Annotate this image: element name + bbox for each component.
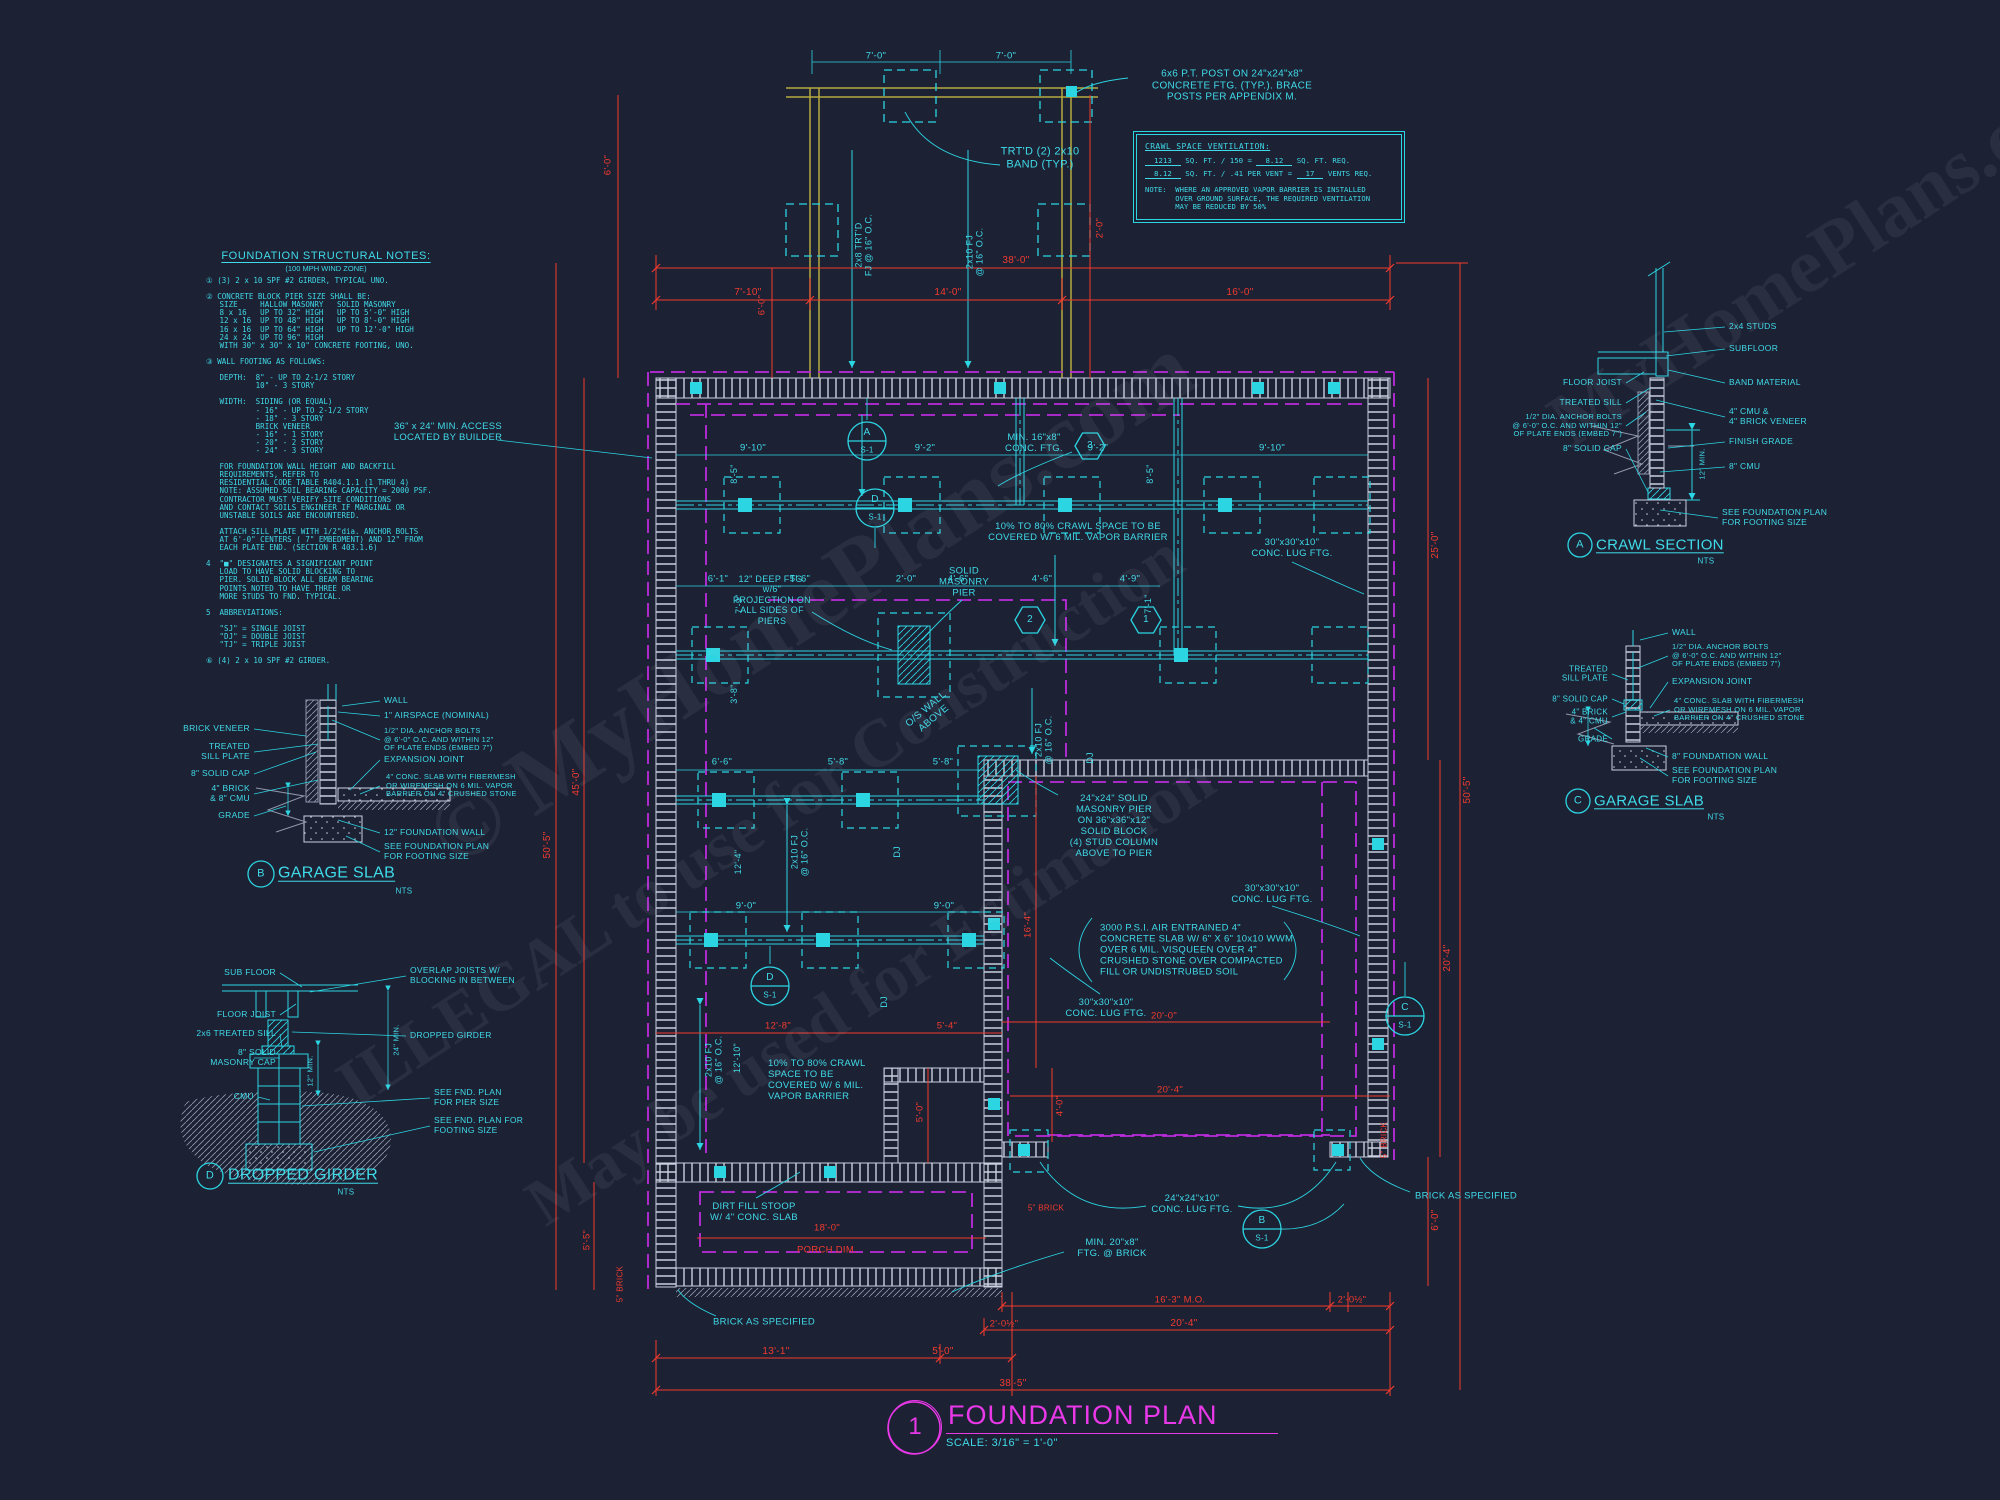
callout-d2-letter: D [766, 972, 774, 984]
a-2x4-studs: 2x4 STUDS [1729, 322, 1777, 332]
a-solid-cap: 8" SOLID CAP [1563, 444, 1622, 454]
a-8-cmu: 8" CMU [1729, 462, 1760, 472]
c-solid-cap: 8" SOLID CAP [1552, 694, 1608, 703]
min-20x8-note: MIN. 20"x8" FTG. @ BRICK [1077, 1237, 1146, 1259]
dim-5-8-a: 5'-8" [828, 756, 848, 767]
dim-38-0: 38'-0" [1002, 255, 1029, 267]
dim-20-4-bottom: 20'-4" [1170, 1318, 1197, 1330]
dim-4-0-v: 4'-0" [1054, 1096, 1065, 1116]
foundation-walls [656, 378, 1390, 1297]
dim-5-0-b: 5'-0" [932, 1346, 953, 1358]
c-nts: NTS [1708, 812, 1725, 821]
callout-d2-sub: S-1 [763, 990, 776, 999]
sheet-number-circle: 1 [888, 1400, 942, 1454]
post-note: 6x6 P.T. POST ON 24"x24"x8" CONCRETE FTG… [1152, 69, 1312, 104]
d-pier-size: SEE FND. PLAN FOR PIER SIZE [434, 1088, 502, 1108]
dj-label-3: DJ [1085, 752, 1095, 764]
vent-calc-line-1: 1213 SQ. FT. / 150 = 8.12 SQ. FT. REQ. [1145, 156, 1393, 166]
a-letter: A [1576, 539, 1584, 552]
porch-dim-label: PORCH DIM. [797, 1244, 857, 1255]
a-finish-grade: FINISH GRADE [1729, 437, 1793, 447]
b-letter: B [257, 868, 265, 881]
vent-line2-mid: SQ. FT. / .41 PER VENT = [1185, 169, 1292, 178]
lug-24-note: 24"x24"x10" CONC. LUG FTG. [1151, 1193, 1232, 1215]
c-grade: GRADE [1578, 734, 1608, 743]
d-12-min: 12" MIN. [307, 1055, 316, 1086]
dim-5-4: 5'-4" [937, 1020, 957, 1031]
dim-20-0: 20'-0" [1151, 1010, 1177, 1021]
deck-fj-label-2: 2x10 FJ @ 16" O.C. [965, 228, 986, 277]
b-brick-cmu: 4" BRICK & 8" CMU [210, 784, 250, 804]
dim-9-10-b: 9'-10" [1259, 442, 1285, 453]
detail-crawl-section [1568, 262, 1725, 557]
d-title: DROPPED GIRDER [228, 1167, 378, 1186]
brick-5-a: 5" BRICK [615, 1266, 624, 1302]
dim-13-1: 13'-1" [762, 1346, 789, 1358]
a-see-fnd: SEE FOUNDATION PLAN FOR FOOTING SIZE [1722, 508, 1827, 528]
lug-ftg-note-3: 30"x30"x10" CONC. LUG FTG. [1065, 997, 1146, 1019]
dim-9-0-a: 9'-0" [736, 900, 756, 911]
deep-ftg-note: 12" DEEP FTG. w/6" PROJECTION ON ALL SID… [733, 574, 811, 626]
vent-req: 8.12 [1256, 156, 1292, 166]
girders [676, 398, 1368, 944]
notes-subtitle: (100 MPH WIND ZONE) [206, 264, 446, 273]
d-dropped-girder: DROPPED GIRDER [410, 1031, 492, 1041]
hex-3-num: 3 [1087, 440, 1093, 452]
callout-a-sub: S-1 [860, 445, 873, 454]
dim-7-1: 7'-1" [1143, 594, 1153, 613]
dim-6-6: 6'-6" [712, 756, 732, 767]
d-letter: D [206, 1170, 214, 1183]
solid-pier-note: SOLID MASONRY PIER [939, 565, 989, 598]
a-subfloor: SUBFLOOR [1729, 344, 1778, 354]
b-fnd-wall: 12" FOUNDATION WALL [384, 828, 485, 838]
deck-dim-lines [812, 50, 1071, 74]
c-brick-cmu: 4" BRICK & 4" CMU [1570, 708, 1608, 727]
notes-body: ① (3) 2 x 10 SPF #2 GIRDER, TYPICAL UNO.… [206, 277, 486, 666]
foundation-plan-sheet: 7'-0"7'-0"TRT'D (2) 2x10 BAND (TYP.)6x6 … [0, 0, 2000, 1500]
sheet-scale: SCALE: 3/16" = 1'-0" [946, 1437, 1278, 1449]
d-nts: NTS [338, 1187, 355, 1196]
callout-b-letter: B [1259, 1215, 1266, 1227]
dim-5-8-b: 5'-8" [933, 756, 953, 767]
dim-7-0-b: 7'-0" [996, 50, 1016, 61]
fj-label-2: 2x10 FJ @ 16" O.C. [704, 1036, 725, 1085]
dim-4-6-b: 4'-6" [1032, 573, 1052, 584]
dim-7-10: 7'-10" [734, 287, 761, 299]
dim-12-10: 12'-10" [732, 1043, 742, 1073]
sheet-title-block: 1 FOUNDATION PLAN SCALE: 3/16" = 1'-0" [888, 1400, 1278, 1454]
dim-9-2-a: 9'-2" [915, 442, 935, 453]
dim-2-0-deck: 2'-0" [1094, 218, 1105, 238]
dim-16-3: 16'-3" M.O. [1155, 1294, 1206, 1305]
fj-label-1: 2x10 FJ @ 16" O.C. [790, 828, 811, 877]
d-footing-size: SEE FND. PLAN FOR FOOTING SIZE [434, 1116, 523, 1136]
dim-6-1: 6'-1" [708, 573, 728, 584]
dim-9-0-b: 9'-0" [934, 900, 954, 911]
hex-1-num: 1 [1143, 614, 1149, 626]
callout-d1-letter: D [871, 494, 879, 506]
a-anchor-bolts: 1/2" DIA. ANCHOR BOLTS @ 6'-0" O.C. AND … [1512, 413, 1622, 439]
b-anchor-bolts: 1/2" DIA. ANCHOR BOLTS @ 6'-0" O.C. AND … [384, 727, 494, 753]
vent-calc-line-2: 8.12 SQ. FT. / .41 PER VENT = 17 VENTS R… [1145, 169, 1393, 179]
dim-4-9: 4'-9" [1120, 573, 1140, 584]
d-treated-sill: 2x6 TREATED SILL [196, 1029, 276, 1039]
c-treated-sill: TREATED SILL PLATE [1562, 665, 1608, 684]
notes-title: FOUNDATION STRUCTURAL NOTES: [206, 250, 446, 262]
b-brick-veneer: BRICK VENEER [183, 724, 250, 734]
a-12-min: 12" MIN. [1699, 448, 1708, 479]
c-fnd-wall: 8" FOUNDATION WALL [1672, 752, 1768, 762]
dim-7-0-a: 7'-0" [866, 50, 886, 61]
deck-band-note: TRT'D (2) 2x10 BAND (TYP.) [1001, 145, 1080, 171]
dim-8-5-a: 8'-5" [729, 464, 739, 483]
vent-line1-mid: SQ. FT. / 150 = [1185, 156, 1252, 165]
callout-b-sub: S-1 [1255, 1233, 1268, 1242]
vent-rate: 8.12 [1145, 169, 1181, 179]
c-expansion: EXPANSION JOINT [1672, 677, 1752, 687]
dim-50-5-left: 50'-5" [542, 831, 554, 858]
dim-20-4-garage: 20'-4" [1157, 1084, 1183, 1095]
b-solid-cap: 8" SOLID CAP [191, 769, 250, 779]
d-sub-floor: SUB FLOOR [224, 968, 276, 978]
callout-c-sub: S-1 [1398, 1020, 1411, 1029]
dim-20-4-right: 20'-4" [1442, 944, 1454, 971]
c-title: GARAGE SLAB [1594, 792, 1704, 809]
c-letter: C [1574, 795, 1582, 808]
dim-9-10-a: 9'-10" [740, 442, 766, 453]
dim-6-0-right: 6'-0" [1430, 1209, 1442, 1230]
a-treated-sill: TREATED SILL [1560, 398, 1623, 408]
slab-note: 3000 P.S.I. AIR ENTRAINED 4" CONCRETE SL… [1100, 922, 1293, 977]
crawl-vapor-note-2: 10% TO 80% CRAWL SPACE TO BE COVERED W/ … [768, 1058, 866, 1102]
b-treated-sill: TREATED SILL PLATE [201, 742, 250, 762]
a-nts: NTS [1698, 556, 1715, 565]
a-band-material: BAND MATERIAL [1729, 378, 1801, 388]
deck-fj-label: 2x8 TRT'D FJ @ 16" O.C. [854, 214, 875, 276]
dim-16-0: 16'-0" [1226, 287, 1253, 299]
cyan-dim-lines [497, 440, 1368, 912]
dj-label-2: DJ [879, 996, 889, 1008]
leader-lines [678, 78, 1410, 1316]
vent-line2-end: VENTS REQ. [1328, 169, 1373, 178]
a-title: CRAWL SECTION [1596, 536, 1724, 553]
d-overlap: OVERLAP JOISTS W/ BLOCKING IN BETWEEN [410, 966, 515, 986]
vent-line1-end: SQ. FT. REQ. [1297, 156, 1350, 165]
callout-d1-sub: S-1 [868, 512, 881, 521]
brick-spec-1: BRICK AS SPECIFIED [713, 1316, 815, 1327]
dim-45-0: 45'-0" [571, 768, 583, 795]
b-see-fnd: SEE FOUNDATION PLAN FOR FOOTING SIZE [384, 842, 489, 862]
dirt-stoop-note: DIRT FILL STOOP W/ 4" CONC. SLAB [710, 1201, 798, 1223]
dim-50-5-right: 50'-5" [1462, 776, 1474, 803]
b-nts: NTS [396, 886, 413, 895]
brick-spec-2: BRICK AS SPECIFIED [1415, 1190, 1517, 1201]
fj-label-3: 2x10 FJ @ 16" O.C. [1034, 716, 1055, 765]
min-ftg-note: MIN. 16"x8" CONC. FTG. [1005, 432, 1063, 454]
callout-c-letter: C [1401, 1002, 1409, 1014]
c-anchor-bolts: 1/2" DIA. ANCHOR BOLTS @ 6'-0" O.C. AND … [1672, 643, 1782, 669]
dim-38-5: 38'-5" [999, 1378, 1026, 1390]
b-grade: GRADE [218, 811, 250, 821]
lug-ftg-note-2: 30"x30"x10" CONC. LUG FTG. [1231, 883, 1312, 905]
d-cmu: CMU [234, 1092, 254, 1102]
hex-2-num: 2 [1027, 614, 1033, 626]
pier-24-note: 24"x24" SOLID MASONRY PIER ON 36"x36"x12… [1070, 793, 1158, 859]
b-airspace: 1" AIRSPACE (NOMINAL) [384, 711, 489, 721]
dim-12-4: 12'-4" [733, 850, 743, 875]
sheet-title: FOUNDATION PLAN [946, 1400, 1278, 1434]
d-masonry-cap: 8" SOLID MASONRY CAP [210, 1048, 276, 1068]
sheet-number: 1 [908, 1413, 921, 1441]
dim-2-0h-a: 2'-0½" [990, 1318, 1019, 1329]
lug-ftg-note-1: 30"x30"x10" CONC. LUG FTG. [1251, 537, 1332, 559]
vents-required: 17 [1297, 169, 1324, 179]
c-wall: WALL [1672, 628, 1696, 638]
structural-notes: FOUNDATION STRUCTURAL NOTES: (100 MPH WI… [206, 250, 486, 666]
b-title: GARAGE SLAB [278, 865, 395, 884]
dim-12-8: 12'-8" [765, 1020, 791, 1031]
b-expansion: EXPANSION JOINT [384, 755, 464, 765]
dim-2-0h-b: 2'-0½" [1338, 1294, 1367, 1305]
crawl-vapor-note-1: 10% TO 80% CRAWL SPACE TO BE COVERED W/ … [988, 521, 1168, 543]
dj-label-1: DJ [892, 846, 902, 858]
dim-5-5-v: 5'-5" [581, 1230, 592, 1250]
plan-linework [0, 0, 2000, 1500]
brick-5-c: 5" BRICK [1379, 1122, 1388, 1158]
dim-5-0-v: 5'-0" [914, 1102, 925, 1122]
a-floor-joist: FLOOR JOIST [1563, 378, 1622, 388]
dim-8-5-b: 8'-5" [1145, 464, 1155, 483]
dim-14-0: 14'-0" [934, 287, 961, 299]
deck-framing [786, 88, 1098, 378]
d-floor-joist: FLOOR JOIST [217, 1010, 276, 1020]
d-24-min: 24" MIN. [393, 1024, 402, 1055]
c-slab: 4" CONC. SLAB WITH FIBERMESH OR WIREMESH… [1674, 697, 1805, 723]
vent-box-note: NOTE: WHERE AN APPROVED VAPOR BARRIER IS… [1145, 186, 1393, 212]
b-slab: 4" CONC. SLAB WITH FIBERMESH OR WIREMESH… [386, 773, 517, 799]
vent-box-title: CRAWL SPACE VENTILATION: [1145, 142, 1393, 151]
c-see-fnd: SEE FOUNDATION PLAN FOR FOOTING SIZE [1672, 766, 1777, 786]
dim-25-0: 25'-0" [1430, 531, 1442, 558]
dim-16-4: 16'-4" [1022, 912, 1033, 938]
b-wall: WALL [384, 696, 408, 706]
vent-area: 1213 [1145, 156, 1181, 166]
dim-3-8: 3'-8" [729, 684, 739, 703]
dim-6-0-deck: 6'-0" [602, 155, 613, 175]
callout-a-letter: A [864, 427, 871, 439]
brick-5-b: 5" BRICK [1028, 1203, 1064, 1212]
a-cmu-brick: 4" CMU & 4" BRICK VENEER [1729, 407, 1807, 427]
dim-18-0: 18'-0" [814, 1222, 840, 1233]
dim-2-0: 2'-0" [896, 573, 916, 584]
crawl-vent-box: CRAWL SPACE VENTILATION: 1213 SQ. FT. / … [1136, 134, 1402, 220]
